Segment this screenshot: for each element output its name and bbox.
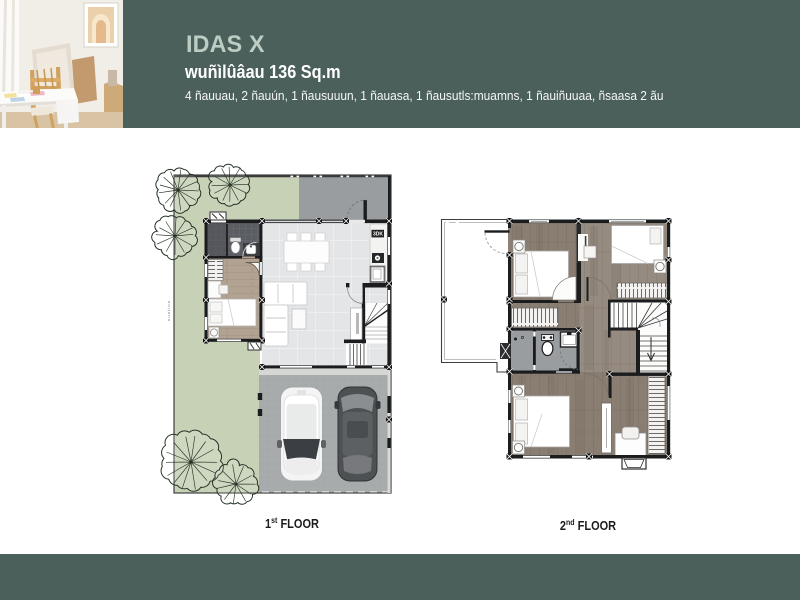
svg-text:3DK: 3DK bbox=[373, 232, 383, 238]
svg-text:n u a t i u a: n u a t i u a bbox=[166, 300, 171, 321]
